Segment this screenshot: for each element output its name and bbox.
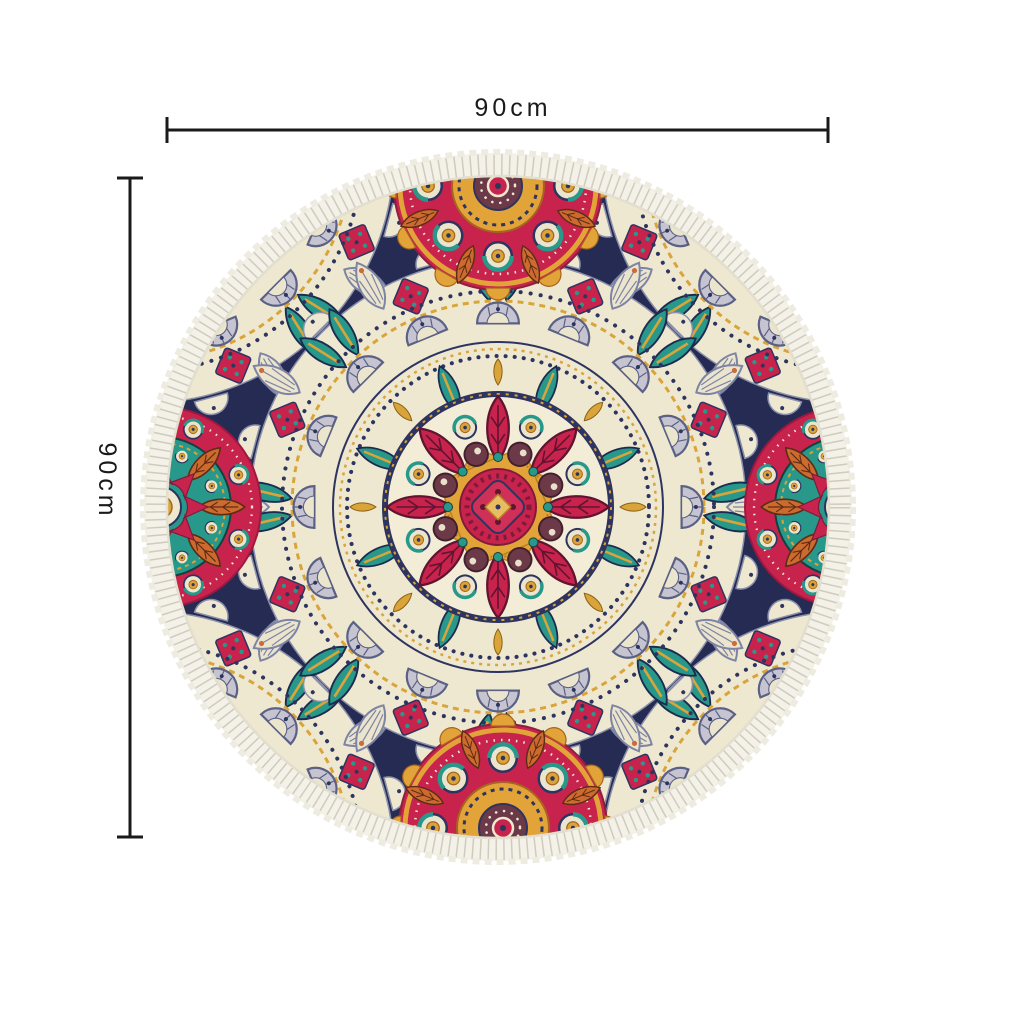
width-dimension-label: 90cm [474,94,551,122]
height-dimension-label: 90cm [93,442,121,519]
towel-diagram-svg: 90cm 90cm [0,0,1024,1024]
product-dimension-diagram: 90cm 90cm [0,0,1024,1024]
